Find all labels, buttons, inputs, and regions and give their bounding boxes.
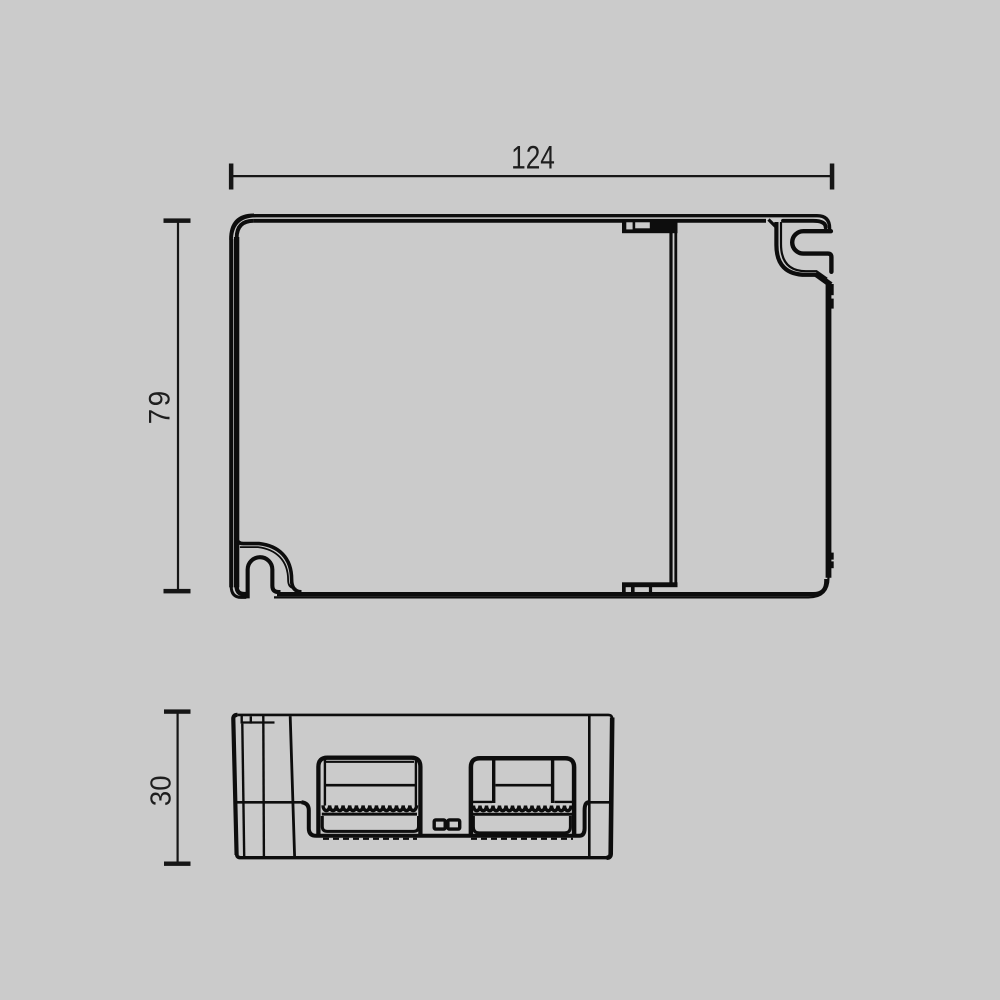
svg-text:30: 30 xyxy=(144,775,177,806)
svg-text:79: 79 xyxy=(144,388,177,424)
svg-text:124: 124 xyxy=(511,141,555,176)
